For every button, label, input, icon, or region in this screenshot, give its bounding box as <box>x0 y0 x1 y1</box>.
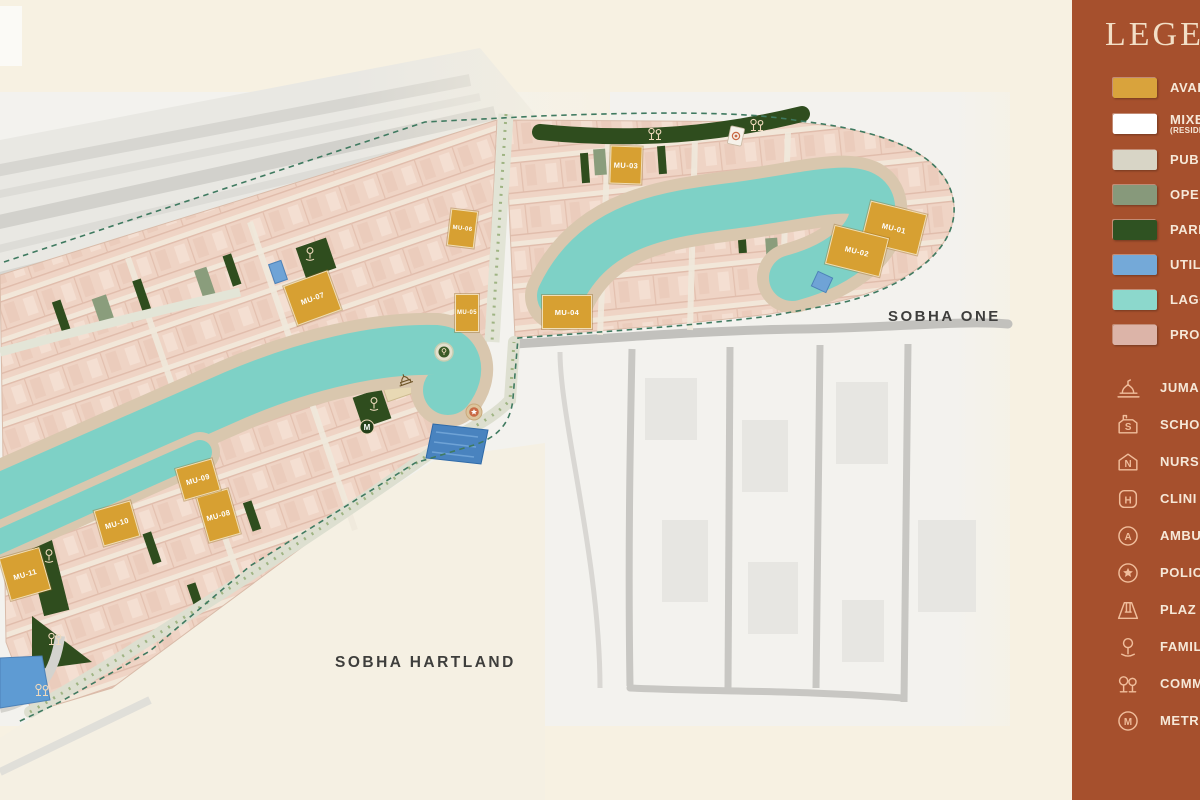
legend-item-famil: FAMIL <box>1113 634 1200 660</box>
svg-text:M: M <box>364 423 371 432</box>
plot-mu-04[interactable]: MU-04 <box>542 295 592 329</box>
legend-swatch <box>1113 325 1157 345</box>
legend-swatch <box>1113 290 1157 310</box>
legend-item-avail: AVAIL <box>1113 78 1200 98</box>
legend-swatch <box>1113 150 1157 170</box>
legend-icon-label: JUMA <box>1160 381 1199 395</box>
clinic-icon: H <box>1113 486 1143 512</box>
legend-swatch-label: PROM <box>1170 328 1200 342</box>
svg-text:A: A <box>1124 532 1131 543</box>
legend-item-open: OPEN <box>1113 185 1200 205</box>
metro-icon: M <box>360 420 374 434</box>
legend-icon-label: METR <box>1160 714 1199 728</box>
legend-item-ambu: AAMBU <box>1113 523 1200 549</box>
legend-swatch-label: MIXED(RESIDE <box>1170 113 1200 135</box>
legend-panel: LEGEN AVAILMIXED(RESIDEPUBLOPENPARKUTILI… <box>1072 0 1200 800</box>
legend-item-clini: HCLINI <box>1113 486 1200 512</box>
page: { "map": { "area_labels": [ {"text": "SO… <box>0 0 1200 800</box>
svg-text:N: N <box>1124 459 1131 470</box>
map-canvas: M SOBHA ONE SOBHA HARTLAND <box>0 0 1065 800</box>
mosque-icon <box>1113 375 1143 401</box>
police-icon <box>1113 560 1143 586</box>
school-icon: S <box>1113 412 1143 438</box>
legend-swatch <box>1113 78 1157 98</box>
nursery-icon: N <box>1113 449 1143 475</box>
legend-item-polic: POLIC <box>1113 560 1200 586</box>
legend-swatch-label: OPEN <box>1170 188 1200 202</box>
legend-icon-label: COMM <box>1160 677 1200 691</box>
legend-item-scho: SSCHO <box>1113 412 1200 438</box>
legend-swatch <box>1113 114 1157 134</box>
legend-item-publ: PUBL <box>1113 150 1200 170</box>
area-label-sobha-one: SOBHA ONE <box>888 308 1001 325</box>
legend-item-mixed: MIXED(RESIDE <box>1113 113 1200 135</box>
plot-mu-06[interactable]: MU-06 <box>446 208 477 248</box>
legend-icon-label: POLIC <box>1160 566 1200 580</box>
legend-item-nurs: NNURS <box>1113 449 1200 475</box>
legend-swatch-label: AVAIL <box>1170 81 1200 95</box>
legend-swatch-label: PARK <box>1170 223 1200 237</box>
plot-mu-05[interactable]: MU-05 <box>455 294 479 332</box>
legend-item-prom: PROM <box>1113 325 1200 345</box>
plaza-icon <box>1113 597 1143 623</box>
legend-item-juma: JUMA <box>1113 375 1200 401</box>
roundabout-tree-icon <box>435 343 453 361</box>
legend-item-park: PARK <box>1113 220 1200 240</box>
legend-swatch-label: LAGO <box>1170 293 1200 307</box>
legend-swatch-label: PUBL <box>1170 153 1200 167</box>
legend-swatch <box>1113 255 1157 275</box>
legend-item-metr: MMETR <box>1113 708 1200 734</box>
legend-swatch-label: UTILIT <box>1170 258 1200 272</box>
legend-icon-label: CLINI <box>1160 492 1197 506</box>
svg-text:M: M <box>1124 717 1132 728</box>
legend-swatch <box>1113 185 1157 205</box>
legend-item-comm: COMM <box>1113 671 1200 697</box>
metro-icon: M <box>1113 708 1143 734</box>
legend-icon-label: PLAZ <box>1160 603 1196 617</box>
svg-text:S: S <box>1125 422 1132 433</box>
ambulance-icon: A <box>1113 523 1143 549</box>
legend-icon-label: FAMIL <box>1160 640 1200 654</box>
svg-text:H: H <box>1124 495 1131 506</box>
community-icon <box>1113 671 1143 697</box>
legend-item-lago: LAGO <box>1113 290 1200 310</box>
masterplan-map: M SOBHA ONE SOBHA HARTLAND MU-01MU-02MU-… <box>0 0 1065 800</box>
police-star-icon <box>466 404 482 420</box>
legend-icon-label: NURS <box>1160 455 1199 469</box>
legend-title: LEGEN <box>1105 16 1200 54</box>
plot-mu-03[interactable]: MU-03 <box>609 145 642 184</box>
legend-icon-label: AMBU <box>1160 529 1200 543</box>
legend-swatch <box>1113 220 1157 240</box>
family-icon <box>1113 634 1143 660</box>
legend-swatch-list: AVAILMIXED(RESIDEPUBLOPENPARKUTILITLAGOP… <box>1113 78 1200 345</box>
legend-item-plaz: PLAZ <box>1113 597 1200 623</box>
legend-item-utilit: UTILIT <box>1113 255 1200 275</box>
area-label-sobha-hartland: SOBHA HARTLAND <box>335 654 516 671</box>
legend-icon-list: JUMASSCHONNURSHCLINIAAMBUPOLICPLAZFAMILC… <box>1113 375 1200 734</box>
legend-icon-label: SCHO <box>1160 418 1200 432</box>
